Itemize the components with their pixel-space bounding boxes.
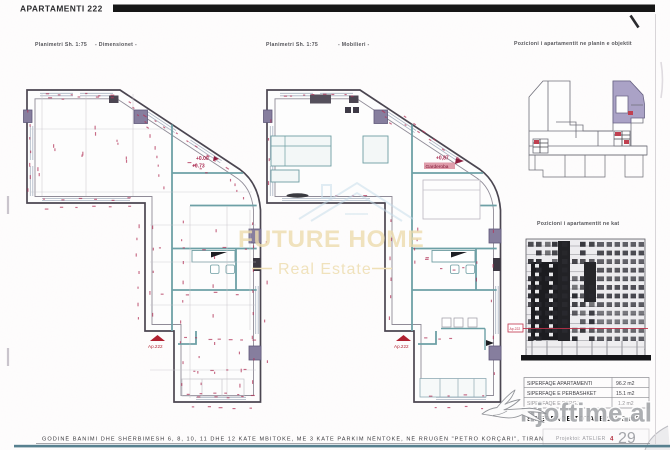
svg-text:Real Estate: Real Estate: [278, 261, 372, 278]
svg-text:FUTURE HOME: FUTURE HOME: [238, 226, 424, 253]
svg-text:+0.00: +0.00: [196, 156, 209, 162]
svg-text:Planimetri Sh. 1:75: Planimetri Sh. 1:75: [266, 42, 318, 48]
svg-text:Garderoba: Garderoba: [426, 164, 449, 170]
svg-text:+0,87: +0,87: [436, 156, 449, 162]
svg-text:Pozicioni i apartamentit ne pl: Pozicioni i apartamentit ne planin e obj…: [514, 41, 632, 47]
svg-text:- Mobilieri -: - Mobilieri -: [338, 42, 370, 48]
svg-text:- Dimensionet -: - Dimensionet -: [95, 42, 137, 48]
svg-text:SIPERFAQE E PERBASHKET: SIPERFAQE E PERBASHKET: [527, 391, 596, 397]
svg-text:Ap.222: Ap.222: [510, 327, 521, 331]
svg-text:Projektoi: ATELIER: Projektoi: ATELIER: [556, 436, 606, 442]
svg-text:15.1 m2: 15.1 m2: [616, 391, 635, 397]
svg-text:GODINË BANIMI DHE SHËRBIMESH 6: GODINË BANIMI DHE SHËRBIMESH 6, 8, 10, 1…: [42, 436, 549, 443]
svg-text:APARTAMENTI 222: APARTAMENTI 222: [20, 4, 103, 14]
svg-text:Ap.222: Ap.222: [148, 344, 163, 349]
svg-text:Planimetri Sh. 1:75: Planimetri Sh. 1:75: [35, 42, 87, 48]
svg-text:+0.73: +0.73: [192, 164, 205, 170]
svg-text:SIPERFAQE APARTAMENTI: SIPERFAQE APARTAMENTI: [527, 381, 592, 387]
svg-text:96.2 m2: 96.2 m2: [616, 381, 635, 387]
svg-text:29: 29: [618, 430, 636, 447]
svg-text:Pozicioni i apartamentit ne ka: Pozicioni i apartamentit ne kat: [537, 221, 619, 227]
svg-text:Ap.222: Ap.222: [394, 344, 409, 349]
